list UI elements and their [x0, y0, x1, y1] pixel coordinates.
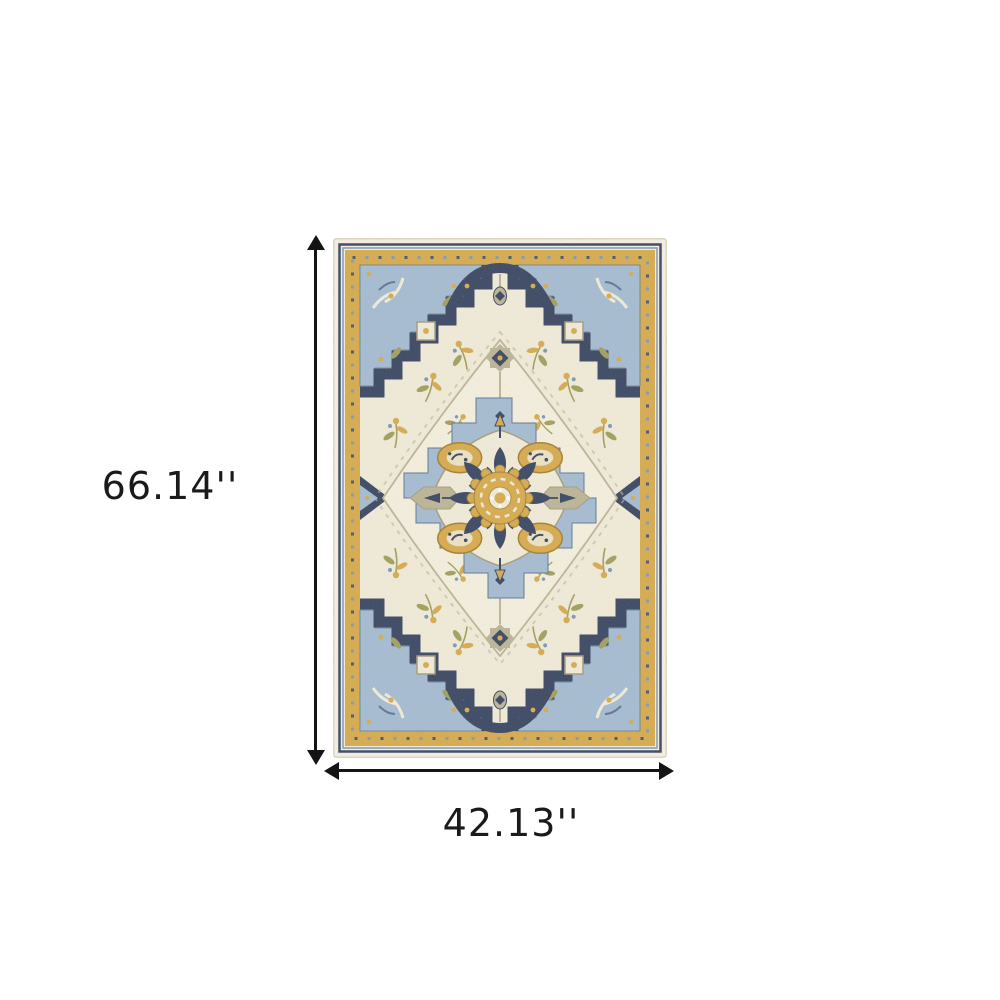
height-dimension-label: 66.14'' — [70, 466, 270, 508]
rug-image — [333, 238, 667, 758]
arrow-right-icon — [659, 762, 674, 780]
width-dimension-label: 42.13'' — [411, 803, 611, 845]
arrow-up-icon — [307, 235, 325, 250]
product-dimension-diagram: 66.14'' 42.13'' — [0, 0, 1000, 1000]
vertical-dimension-line — [314, 247, 317, 753]
wool-texture-overlay — [333, 238, 667, 758]
arrow-down-icon — [307, 750, 325, 765]
horizontal-dimension-line — [337, 769, 661, 772]
arrow-left-icon — [324, 762, 339, 780]
